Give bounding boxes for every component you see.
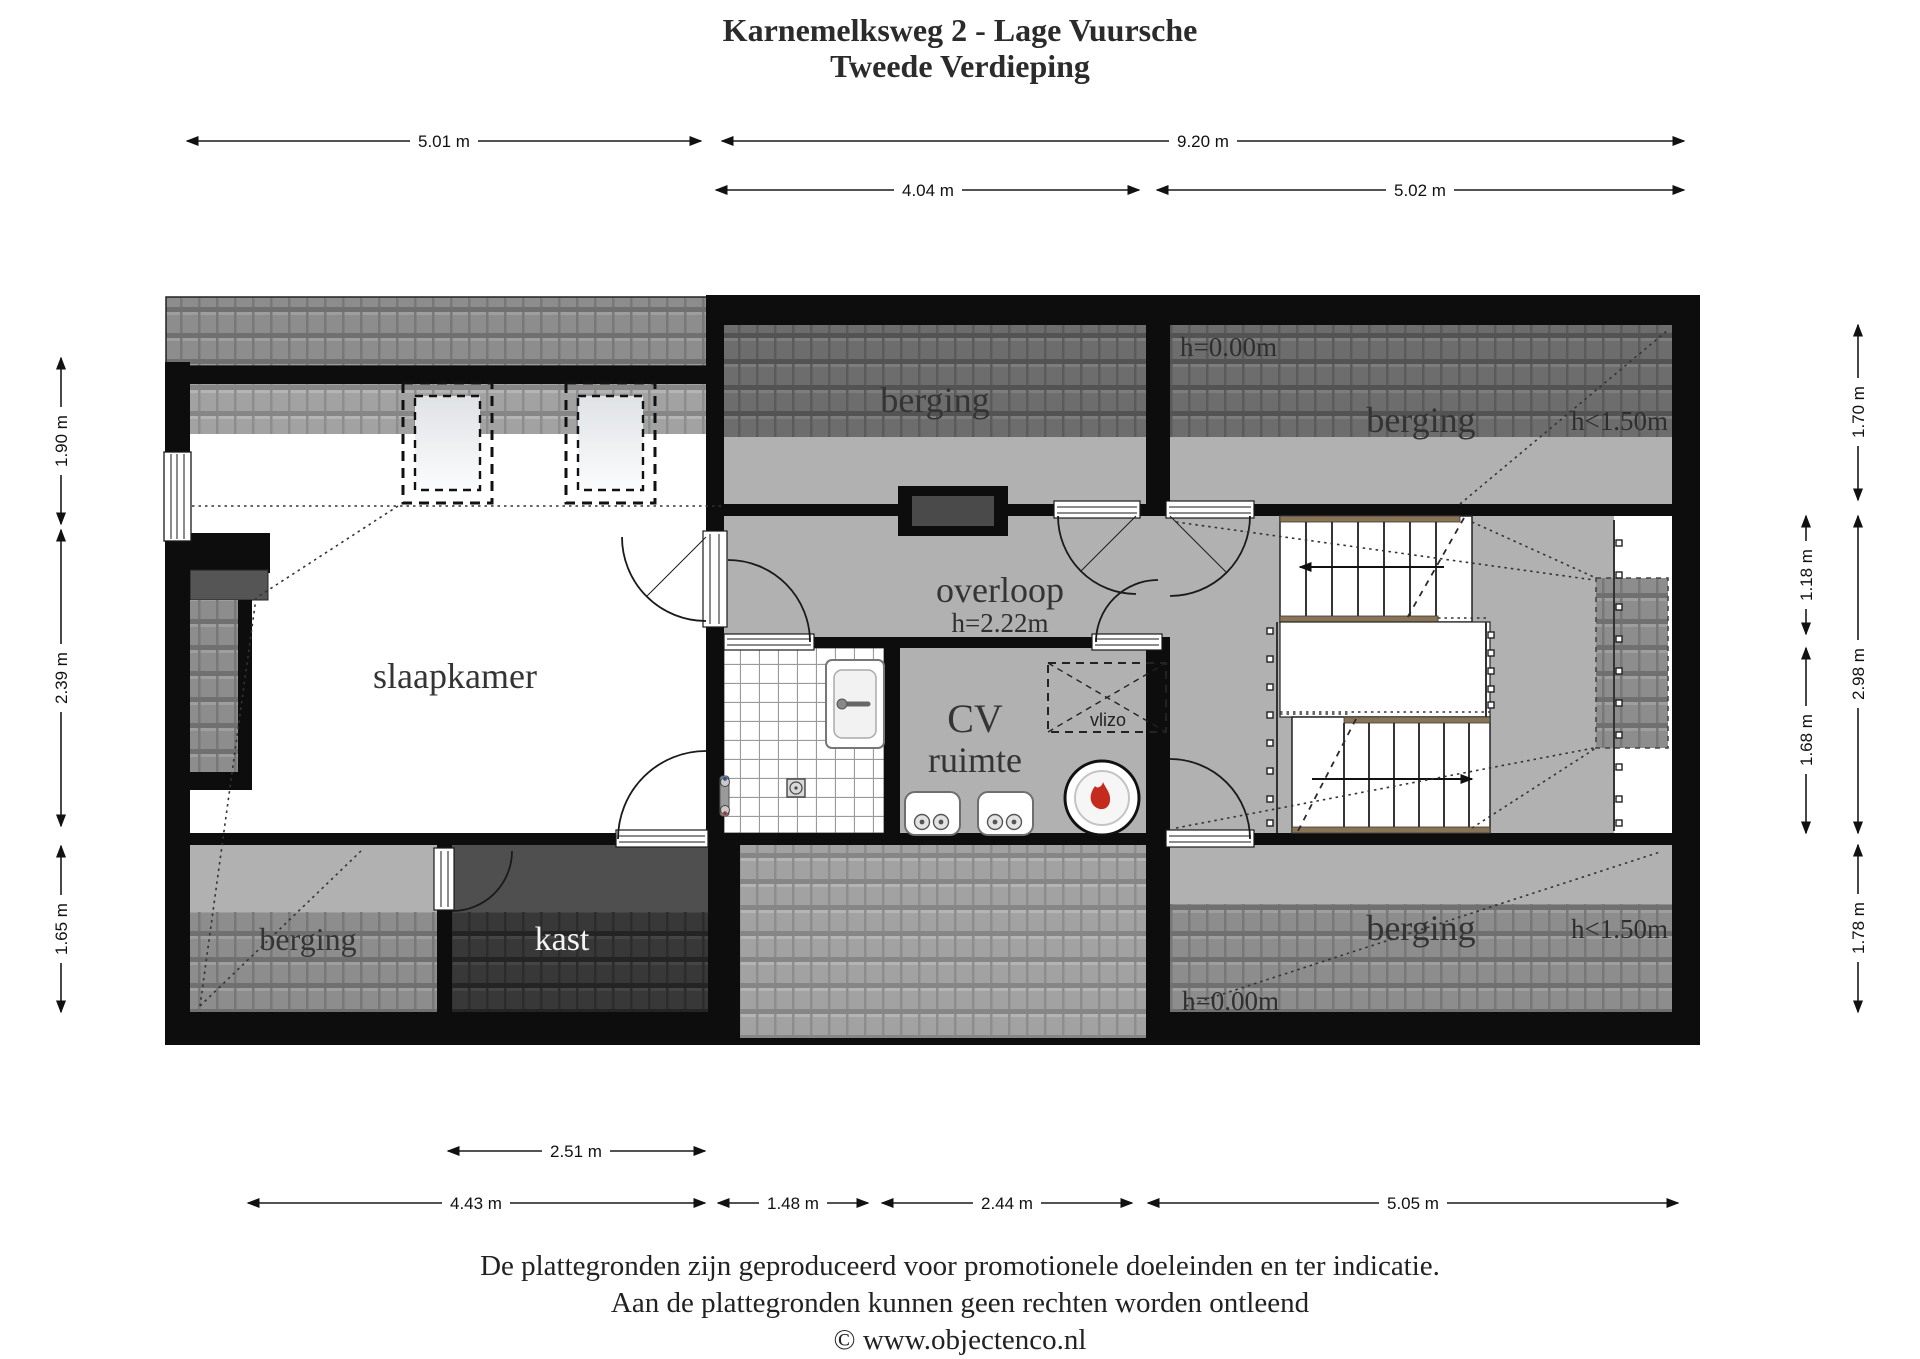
stair-nosing-bottom [1292,827,1490,833]
wall-bath-cv [884,637,900,833]
svg-text:1.90 m: 1.90 m [52,415,71,467]
svg-text:4.04 m: 4.04 m [902,181,954,200]
wall-kast-east [708,833,740,1045]
window-left [164,452,191,541]
expansion-vessel-2 [978,792,1033,835]
label-berging-top-middle: berging [880,380,989,420]
kast-floor [452,845,708,912]
dim-left-239: 2.39 m [51,530,71,826]
wall-outer-right [1672,295,1700,1045]
berging-top-right-floor [1170,437,1672,504]
dim-top-404: 4.04 m [716,180,1139,200]
stair-nosing-mid-lower [1344,717,1490,723]
dim-bottom-443: 4.43 m [248,1193,705,1213]
floor-drain [787,779,805,797]
label-h000-bottom: h=0.00m [1182,986,1279,1016]
stair-void [1280,622,1490,717]
label-slaapkamer: slaapkamer [373,656,537,696]
label-berging-bottom-left: berging [259,921,356,957]
wall-between-top-bergings [1146,295,1170,516]
chimney-edge-right [238,600,252,790]
svg-text:1.68 m: 1.68 m [1797,714,1816,766]
floorplan-page: { "title": { "line1": "Karnemelksweg 2 -… [0,0,1920,1358]
chimney-roof-left [190,600,238,772]
cv-boiler [1065,761,1139,835]
shower-mixer [720,776,730,816]
svg-text:2.98 m: 2.98 m [1849,648,1868,700]
label-berging-bottom-right: berging [1366,908,1475,948]
svg-text:1.70 m: 1.70 m [1849,386,1868,438]
dim-right-298: 2.98 m [1848,516,1868,833]
dim-top-920: 9.20 m [722,131,1684,151]
floorplan-svg: slaapkamer berging berging berging bergi… [0,0,1920,1358]
dim-left-165: 1.65 m [51,846,71,1012]
dim-right-118: 1.18 m [1796,516,1816,634]
wall-bottom-middle-east [1146,845,1170,1045]
dim-bottom-148: 1.48 m [718,1193,868,1213]
svg-text:4.43 m: 4.43 m [450,1194,502,1213]
dim-bottom-244: 2.44 m [882,1193,1132,1213]
svg-text:5.02 m: 5.02 m [1394,181,1446,200]
stair-upper-flight [1280,516,1472,622]
roof-dormer-right [1596,578,1668,748]
svg-text:5.05 m: 5.05 m [1387,1194,1439,1213]
label-cv-ruimte: ruimte [928,740,1022,780]
copyright-line: © www.objectenco.nl [0,1322,1920,1359]
svg-text:2.39 m: 2.39 m [52,652,71,704]
expansion-vessel-1 [905,792,960,835]
disclaimer-line2: Aan de plattegronden kunnen geen rechten… [0,1285,1920,1322]
svg-text:2.44 m: 2.44 m [981,1194,1033,1213]
dim-top-501: 5.01 m [187,131,701,151]
chimney-middle-flue [912,496,994,526]
disclaimer-line1: De plattegronden zijn geproduceerd voor … [0,1248,1920,1285]
skylight-2 [566,383,655,503]
svg-text:1.78 m: 1.78 m [1849,902,1868,954]
svg-text:9.20 m: 9.20 m [1177,132,1229,151]
chimney-cap-left [190,570,268,600]
berging-bottom-left-floor [190,845,437,912]
label-overloop: overloop [936,570,1064,610]
label-kast: kast [535,921,590,958]
stair-nosing-top [1280,516,1460,522]
dim-bottom-505: 5.05 m [1148,1193,1678,1213]
dim-right-170: 1.70 m [1848,325,1868,500]
roof-strip-outer-left [166,297,724,366]
label-cv: CV [947,696,1003,741]
sink [826,660,884,748]
label-overloop-height: h=2.22m [952,608,1049,638]
disclaimer: De plattegronden zijn geproduceerd voor … [0,1248,1920,1359]
dim-right-178: 1.78 m [1848,845,1868,1012]
roof-bottom-middle [740,845,1146,1038]
dim-top-502: 5.02 m [1157,180,1684,200]
svg-text:2.51 m: 2.51 m [550,1142,602,1161]
label-h000-top: h=0.00m [1180,332,1277,362]
berging-bottom-right-floor [1170,845,1672,904]
svg-text:1.65 m: 1.65 m [52,903,71,955]
dim-right-168: 1.68 m [1796,648,1816,833]
stair-lower-flight [1292,717,1490,833]
svg-text:1.18 m: 1.18 m [1797,549,1816,601]
skylight-1 [403,383,492,503]
label-h150-top: h<1.50m [1571,406,1668,436]
dim-left-190: 1.90 m [51,358,71,524]
wall-top-main [706,295,1700,325]
svg-text:1.48 m: 1.48 m [767,1194,819,1213]
dim-bottom-251: 2.51 m [448,1141,705,1161]
wall-top-left-section [165,366,724,384]
label-vlizo: vlizo [1090,710,1126,730]
label-h150-bottom: h<1.50m [1571,914,1668,944]
svg-text:5.01 m: 5.01 m [418,132,470,151]
label-berging-top-right: berging [1366,400,1475,440]
stair-nosing-mid-upper [1280,616,1438,622]
staircase [1267,516,1494,833]
